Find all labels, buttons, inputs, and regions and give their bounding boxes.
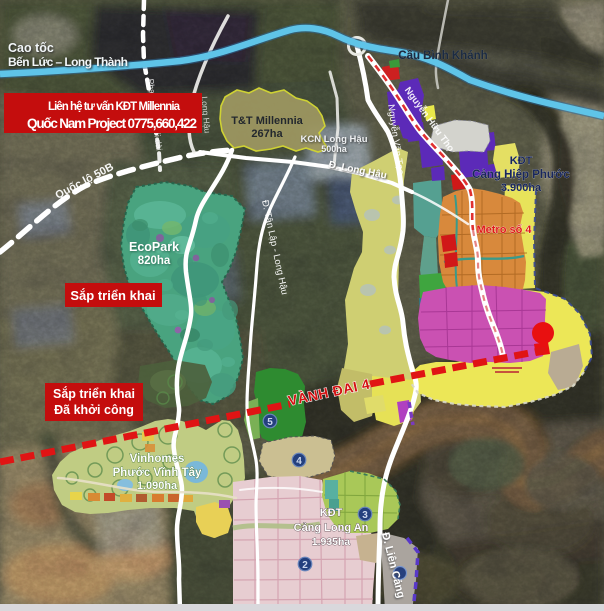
svg-text:1.090ha: 1.090ha (137, 480, 178, 492)
svg-text:Vinhomes: Vinhomes (130, 453, 185, 465)
svg-text:KĐT: KĐT (320, 507, 343, 519)
svg-text:3.900ha: 3.900ha (501, 182, 542, 194)
svg-text:Cao tốc: Cao tốc (8, 41, 54, 55)
svg-text:EcoPark: EcoPark (129, 240, 179, 254)
svg-text:5: 5 (267, 417, 273, 428)
svg-text:820ha: 820ha (138, 255, 171, 267)
svg-text:Cảng Long An: Cảng Long An (294, 522, 369, 534)
svg-text:2: 2 (302, 560, 308, 571)
svg-text:267ha: 267ha (251, 128, 283, 140)
svg-text:Bến Lức – Long Thành: Bến Lức – Long Thành (8, 55, 128, 69)
svg-text:Cầu Bình Khánh: Cầu Bình Khánh (398, 50, 487, 62)
svg-text:4: 4 (296, 456, 302, 467)
svg-text:3: 3 (362, 510, 368, 521)
svg-text:Sắp triển khai: Sắp triển khai (53, 386, 135, 401)
svg-text:Liên hệ tư vấn KĐT Millennia: Liên hệ tư vấn KĐT Millennia (48, 101, 181, 113)
svg-text:1.935ha: 1.935ha (312, 536, 351, 548)
svg-text:Đã khởi công: Đã khởi công (54, 403, 134, 417)
svg-text:Sắp triển khai: Sắp triển khai (70, 288, 155, 303)
svg-text:Phước Vĩnh Tây: Phước Vĩnh Tây (113, 467, 202, 479)
svg-text:T&T Millennia: T&T Millennia (231, 115, 303, 127)
svg-text:Metro số 4: Metro số 4 (476, 224, 532, 236)
svg-text:Cảng Hiệp Phước: Cảng Hiệp Phước (472, 169, 570, 181)
svg-text:Quốc Nam Project 0775,660,422: Quốc Nam Project 0775,660,422 (27, 116, 197, 131)
svg-text:500ha: 500ha (321, 144, 348, 154)
svg-text:KĐT: KĐT (510, 155, 533, 167)
